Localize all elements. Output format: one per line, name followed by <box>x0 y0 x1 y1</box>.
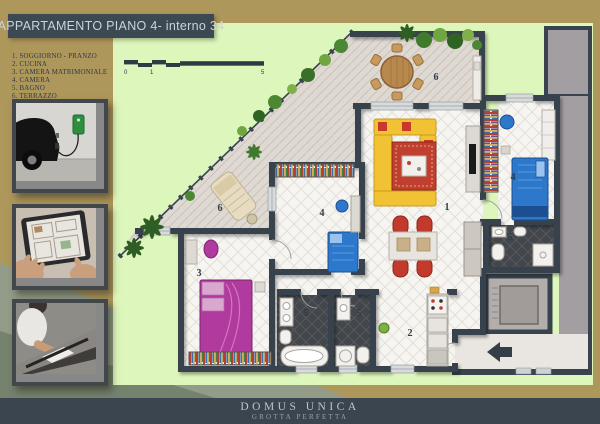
scale-label-1: 1 <box>150 70 154 75</box>
legend-item: 4. CAMERA <box>12 77 122 85</box>
footer-title: DOMUS UNICA <box>240 401 359 413</box>
title-box: APPARTAMENTO PIANO 4- interno 34 <box>8 14 214 38</box>
entrance-landing <box>452 334 592 374</box>
side-table <box>247 214 257 224</box>
room-label-bath-right: 5 <box>508 232 513 243</box>
photo-architect-desk <box>12 299 108 386</box>
legend: 1. SOGGIORNO - PRANZO 2. CUCINA 3. CAMER… <box>12 53 122 101</box>
stair-shaft <box>486 276 550 332</box>
living-rug <box>392 142 436 190</box>
floor-plan: 1 2 3 4 4 5 5 5 6 6 <box>113 23 593 385</box>
scale-label-5: 5 <box>261 70 265 75</box>
bookshelf <box>484 110 498 192</box>
footer-subtitle: GROTTA PERFETTA <box>252 413 348 421</box>
room-label-living: 1 <box>445 202 450 213</box>
scale-bar: 0 1 5 <box>124 59 270 75</box>
room-label-bedroom-right: 4 <box>511 172 516 183</box>
tablet <box>21 210 91 268</box>
room-label-kitchen: 2 <box>408 328 413 339</box>
room-label-terrace-top: 6 <box>434 72 439 83</box>
page-title: APPARTAMENTO PIANO 4- interno 34 <box>0 19 224 33</box>
tv-unit <box>466 126 480 192</box>
presentation-page: 1 2 3 4 4 5 5 5 6 6 APPARTAMENTO PIANO 4… <box>0 0 600 424</box>
room-label-bath-a: 5 <box>304 308 309 319</box>
ev-charger <box>73 115 84 134</box>
legend-item: 5. BAGNO <box>12 85 122 93</box>
room-label-bath-b: 5 <box>357 308 362 319</box>
person-shirt <box>17 308 47 346</box>
room-label-bedroom-center: 4 <box>320 208 325 219</box>
counter-sink <box>474 62 480 70</box>
scale-label-0: 0 <box>124 70 128 75</box>
photo-tablet-plan <box>12 204 108 290</box>
legend-item: 2. CUCINA <box>12 61 122 69</box>
footer: DOMUS UNICA GROTTA PERFETTA <box>0 398 600 424</box>
room-label-master: 3 <box>197 268 202 279</box>
room-label-terrace-lower: 6 <box>218 203 223 214</box>
legend-item: 1. SOGGIORNO - PRANZO <box>12 53 122 61</box>
coffee-table <box>402 156 426 176</box>
legend-item: 3. CAMERA MATRIMONIALE <box>12 69 122 77</box>
photo-car-charging <box>12 99 108 193</box>
